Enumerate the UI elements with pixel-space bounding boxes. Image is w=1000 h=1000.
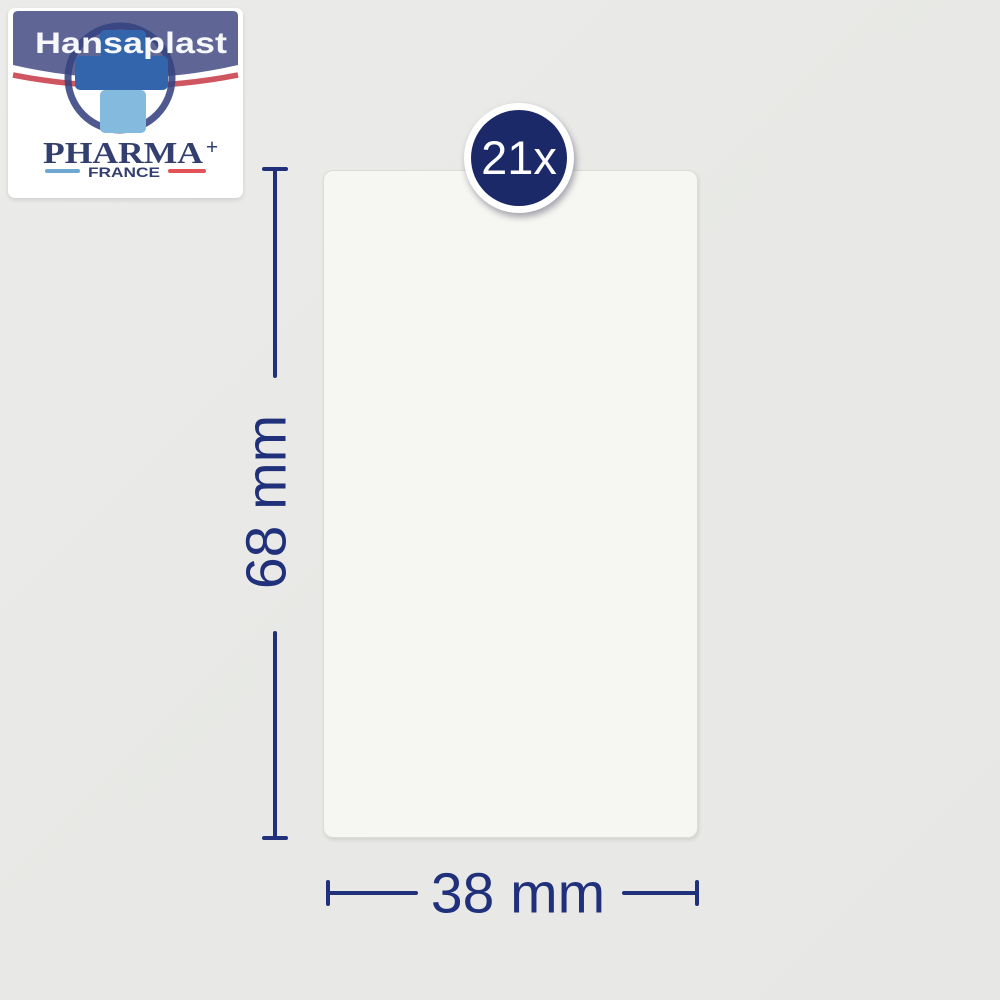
brand-logo-card: Hansaplast PHARMA + FRANCE [8,8,243,198]
width-dimension-line-left [328,891,418,895]
france-underline-blue [45,169,80,173]
height-dimension-line-top [273,169,277,378]
height-dimension-line-bottom [273,631,277,839]
count-badge-disc: 21x [471,110,567,206]
country-label: FRANCE [88,164,160,180]
height-dimension-cap-bottom [262,836,288,840]
count-badge-label: 21x [481,134,557,181]
height-dimension-label: 68 mm [239,415,296,589]
france-underline-red [168,169,206,173]
width-dimension-line-right [622,891,699,895]
width-dimension-label: 38 mm [431,866,605,923]
brand-wordmark: Hansaplast [35,27,227,60]
count-badge: 21x [464,103,574,213]
brand-logo: Hansaplast PHARMA + FRANCE [8,8,243,198]
pharma-plus-sign: + [206,134,219,159]
product-image: 68 mm 38 mm 21x Hansaplast [0,0,1000,1000]
plaster-rectangle [323,170,698,838]
width-dimension-tick-right [695,880,699,906]
